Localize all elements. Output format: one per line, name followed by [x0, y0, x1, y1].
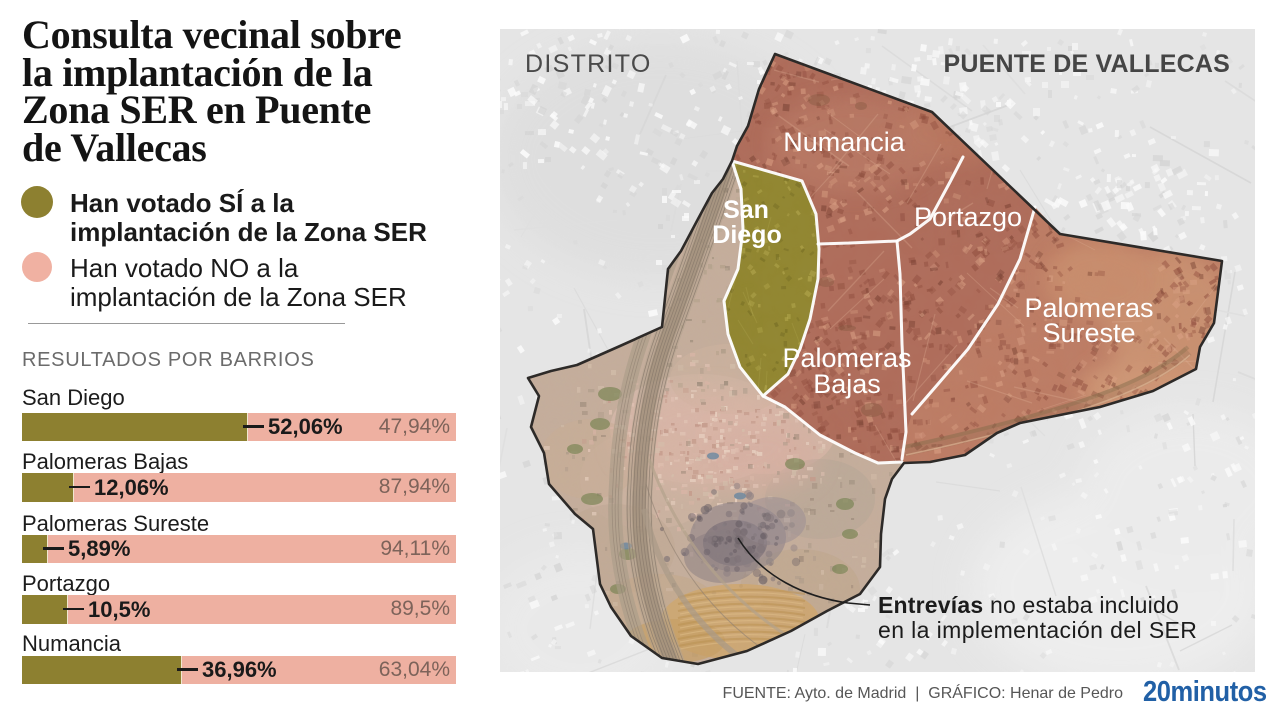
svg-text:en la implementación del SER: en la implementación del SER [878, 617, 1197, 643]
svg-text:Diego: Diego [712, 221, 781, 249]
svg-text:San: San [723, 196, 769, 224]
svg-text:Numancia: Numancia [783, 127, 906, 157]
svg-text:Portazgo: Portazgo [914, 202, 1022, 232]
svg-text:Bajas: Bajas [813, 369, 881, 399]
svg-text:Entrevías no estaba incluido: Entrevías no estaba incluido [878, 592, 1179, 618]
svg-text:PUENTE DE VALLECAS: PUENTE DE VALLECAS [944, 50, 1231, 78]
svg-text:DISTRITO: DISTRITO [525, 50, 652, 78]
svg-text:Sureste: Sureste [1042, 318, 1135, 348]
